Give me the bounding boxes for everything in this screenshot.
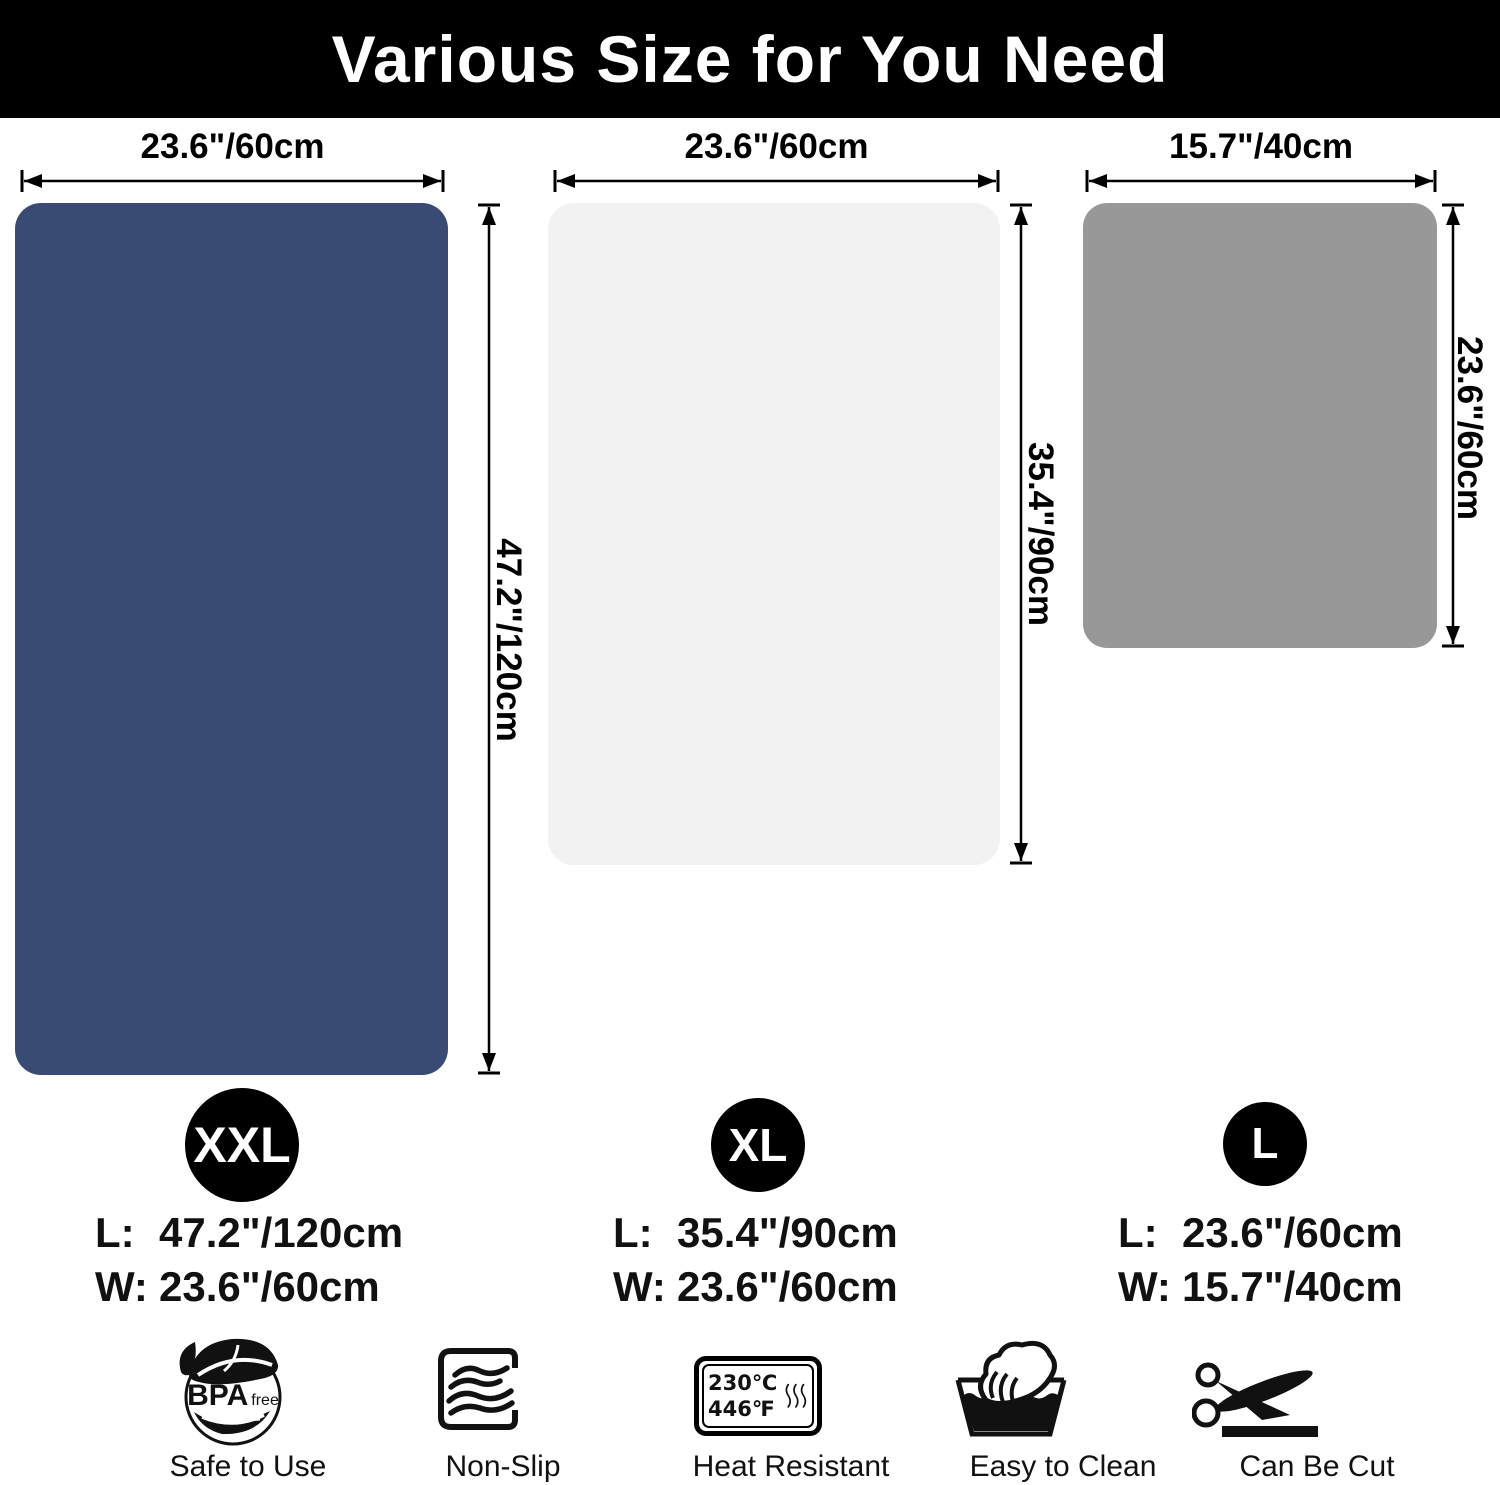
size-badge-xxl: XXL xyxy=(185,1088,299,1202)
bpa-free-leaf-icon: BPA free xyxy=(172,1333,294,1447)
page-title: Various Size for You Need xyxy=(332,21,1169,97)
width-key: W: xyxy=(95,1260,159,1314)
heat-temp-celsius: 230℃ xyxy=(708,1370,777,1396)
width-key: W: xyxy=(1118,1260,1182,1314)
width-label-xxl: 23.6"/60cm xyxy=(20,128,445,166)
height-label-xl: 35.4"/90cm xyxy=(1020,442,1060,626)
length-key: L: xyxy=(613,1206,677,1260)
non-slip-waves-icon xyxy=(434,1344,522,1434)
length-value: 23.6"/60cm xyxy=(1182,1209,1403,1256)
width-spec: W:23.6"/60cm xyxy=(95,1260,403,1314)
width-value: 23.6"/60cm xyxy=(677,1263,898,1310)
width-spec: W:23.6"/60cm xyxy=(613,1260,898,1314)
heat-resistant-icon: 230℃ 446℉ xyxy=(694,1356,822,1436)
width-arrow-xl xyxy=(553,168,1000,194)
feature-label-non-slip: Non-Slip xyxy=(445,1450,560,1484)
width-key: W: xyxy=(613,1260,677,1314)
length-key: L: xyxy=(1118,1206,1182,1260)
feature-label-heat: Heat Resistant xyxy=(693,1450,890,1484)
size-specs-xl: L:35.4"/90cm W:23.6"/60cm xyxy=(613,1206,898,1314)
mat-xxl xyxy=(15,203,448,1075)
size-badge-l: L xyxy=(1223,1102,1307,1186)
feature-label-clean: Easy to Clean xyxy=(970,1450,1157,1484)
header-bar: Various Size for You Need xyxy=(0,0,1500,118)
height-label-l: 23.6"/60cm xyxy=(1449,336,1489,520)
length-value: 47.2"/120cm xyxy=(159,1209,403,1256)
width-value: 23.6"/60cm xyxy=(159,1263,380,1310)
width-dimension-xxl: 23.6"/60cm xyxy=(20,128,445,194)
wash-hand-icon xyxy=(953,1336,1071,1438)
size-infographic: Various Size for You Need 23.6"/60cm 47.… xyxy=(0,0,1500,1485)
width-label-xl: 23.6"/60cm xyxy=(553,128,1000,166)
size-specs-xxl: L:47.2"/120cm W:23.6"/60cm xyxy=(95,1206,403,1314)
length-spec: L:47.2"/120cm xyxy=(95,1206,403,1260)
width-spec: W:15.7"/40cm xyxy=(1118,1260,1403,1314)
bpa-text-sub: free xyxy=(251,1392,279,1410)
length-spec: L:23.6"/60cm xyxy=(1118,1206,1403,1260)
bpa-text-main: BPA xyxy=(187,1379,248,1413)
width-dimension-xl: 23.6"/60cm xyxy=(553,128,1000,194)
height-label-xxl: 47.2"/120cm xyxy=(488,538,528,741)
length-key: L: xyxy=(95,1206,159,1260)
bpa-free-text: BPA free xyxy=(172,1379,294,1413)
width-dimension-l: 15.7"/40cm xyxy=(1085,128,1437,194)
feature-label-cut: Can Be Cut xyxy=(1239,1450,1394,1484)
scissors-cut-icon xyxy=(1192,1360,1324,1440)
length-value: 35.4"/90cm xyxy=(677,1209,898,1256)
wash-hand-glyph xyxy=(953,1336,1071,1438)
width-arrow-xxl xyxy=(20,168,445,194)
width-value: 15.7"/40cm xyxy=(1182,1263,1403,1310)
size-specs-l: L:23.6"/60cm W:15.7"/40cm xyxy=(1118,1206,1403,1314)
heat-waves-glyph xyxy=(784,1368,808,1424)
non-slip-glyph xyxy=(434,1344,522,1434)
feature-label-safe: Safe to Use xyxy=(170,1450,327,1484)
width-arrow-l xyxy=(1085,168,1437,194)
mat-xl xyxy=(548,203,1000,865)
size-badge-xl: XL xyxy=(711,1098,805,1192)
mat-l xyxy=(1083,203,1437,648)
length-spec: L:35.4"/90cm xyxy=(613,1206,898,1260)
heat-temperatures: 230℃ 446℉ xyxy=(708,1370,777,1422)
width-label-l: 15.7"/40cm xyxy=(1085,128,1437,166)
scissors-glyph xyxy=(1192,1360,1324,1440)
heat-resistant-inner: 230℃ 446℉ xyxy=(702,1364,814,1428)
heat-temp-fahrenheit: 446℉ xyxy=(708,1396,777,1422)
